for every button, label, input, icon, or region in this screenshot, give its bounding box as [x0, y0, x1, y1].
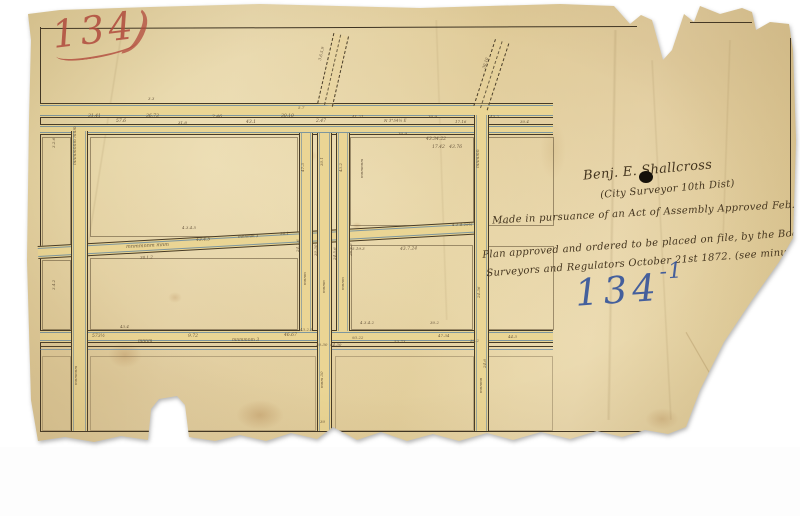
measurement-label: 30 [320, 420, 325, 424]
measurement-label: 5.19.3 [352, 247, 365, 251]
measurement-label: 30.30 44.30 [316, 343, 341, 347]
measurement-label: 5.7 [298, 106, 304, 110]
measurement-label: 24.6 [483, 359, 487, 368]
scanned-survey-plan: 31.4157.636.7331.82.4643.130.102.4741.21… [0, 0, 800, 447]
measurement-label: 43.2 [490, 115, 499, 119]
measurement-label: mnnmm 3 [238, 234, 259, 239]
measurement-label: 3.3 [148, 97, 154, 101]
measurement-label: 43.1 [246, 121, 256, 126]
measurement-label: 57.6 [116, 120, 126, 125]
measurement-label: 31.41 [88, 115, 101, 120]
measurement-label: 30.2 [430, 321, 439, 325]
measurement-label: 3.4.2 [52, 280, 56, 290]
measurement-label: 43.34.22 [426, 138, 446, 143]
measurement-label: 2.47 [316, 120, 326, 125]
paper-sheet-wrap: 31.4157.636.7331.82.4643.130.102.4741.21… [0, 0, 800, 447]
measurement-label: 24.5.6 [333, 247, 337, 260]
measurement-label: 30.4 [520, 120, 529, 124]
measurement-label: 30.2 [470, 339, 479, 343]
measurement-label: mnmmnm 3 [232, 339, 259, 344]
measurement-label: 4.1.4.29½ [452, 223, 472, 227]
blue-file-number-main: 134 [574, 266, 662, 315]
measurement-label: mnnm [138, 340, 152, 345]
measurement-label: 3.2.6 [52, 138, 56, 148]
measurement-label: mnmn [322, 280, 326, 293]
measurement-label: mnmmn [477, 149, 482, 168]
measurement-label: 9.72 [188, 335, 198, 340]
measurement-label: 30.1 [320, 157, 324, 166]
measurement-layer: 31.4157.636.7331.82.4643.130.102.4741.21… [0, 0, 800, 447]
measurement-label: 46.67 [284, 334, 297, 339]
measurement-label: 17.42 43.76 [432, 146, 462, 151]
measurement-label: 24.36 [477, 287, 481, 298]
measurement-label: 43.4 [120, 325, 129, 329]
measurement-label: 30.1.2 [140, 255, 153, 260]
measurement-label: 30.9 [428, 115, 437, 119]
measurement-label: 2.46 [212, 116, 222, 121]
measurement-label: 47.34 [438, 334, 449, 338]
measurement-label: 43.7.24 [400, 247, 417, 252]
measurement-label: mnmnnm [360, 159, 364, 178]
measurement-label: 41.21 [352, 115, 363, 119]
measurement-label: 43.4.5 [196, 238, 211, 243]
measurement-label: 24.1.6 [296, 239, 300, 252]
measurement-label: 93.22 [352, 336, 363, 340]
measurement-label: mnmmnnm mnm [126, 243, 169, 250]
measurement-label: 30.30 [314, 245, 318, 256]
blue-file-number-suffix: -1 [659, 258, 684, 285]
measurement-label: 30.9 [398, 132, 407, 136]
measurement-label: mnmnnm [74, 366, 78, 385]
measurement-label: 17.16 [455, 120, 466, 124]
measurement-label: 53.73 [394, 340, 405, 344]
measurement-label: 573½ [92, 335, 105, 340]
ink-blot [639, 171, 653, 183]
measurement-label: 43.2.5 [300, 328, 313, 332]
measurement-label: 47.3 [301, 163, 305, 172]
blue-file-number: 134-1 [574, 264, 686, 315]
measurement-label: mnm 30 [320, 371, 324, 388]
measurement-label: mnnmn [479, 378, 483, 393]
measurement-label: 3.6.5.9 [318, 46, 325, 61]
measurement-label: 44.3 [508, 335, 517, 339]
measurement-label: 43.2 [339, 163, 343, 172]
measurement-label: 30.1 [280, 232, 289, 236]
measurement-label: 4.3.4.2 [360, 321, 374, 325]
measurement-label: 36.73 [146, 115, 159, 120]
aged-paper-sheet: 31.4157.636.7331.82.4643.130.102.4741.21… [0, 0, 800, 447]
measurement-label: mnnm [341, 277, 345, 290]
measurement-label: mnnm [303, 272, 307, 285]
measurement-label: mnmmnnm mnm [74, 126, 79, 165]
measurement-label: 30.10 [482, 57, 489, 69]
measurement-label: 4.3.4.5 [182, 226, 196, 230]
measurement-label: 30.10 [281, 115, 294, 120]
measurement-label: N 3°54½ E [384, 119, 407, 123]
measurement-label: 31.8 [178, 121, 187, 125]
